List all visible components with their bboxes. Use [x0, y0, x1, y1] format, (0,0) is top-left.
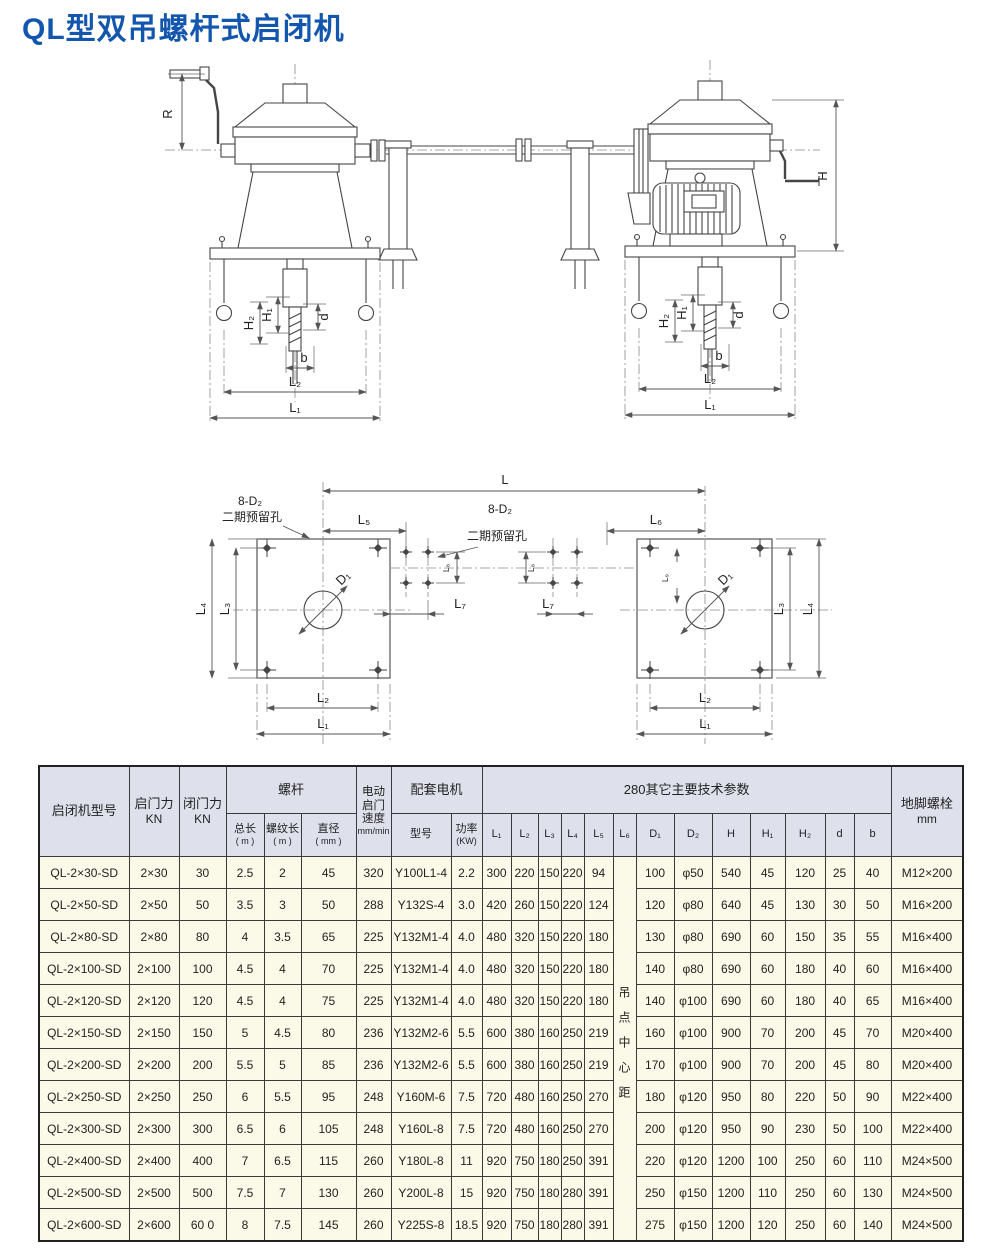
cell-L1: 600 [482, 1017, 511, 1049]
cell-L3: 160 [538, 1081, 561, 1113]
cell-D1: 130 [636, 921, 674, 953]
table-row: QL-2×500-SD 2×500 500 7.5 7 130 260 Y200… [39, 1177, 963, 1209]
cell-L4: 250 [561, 1049, 584, 1081]
cell-speed: 225 [356, 985, 391, 1017]
cell-H: 540 [712, 857, 750, 889]
cell-L1: 300 [482, 857, 511, 889]
cell-H: 1200 [712, 1209, 750, 1242]
cell-L1: 720 [482, 1081, 511, 1113]
spec-table-head: 启闭机型号 启门力 KN 闭门力 KN 螺杆 电动启门速度 mm/min 配套电… [39, 766, 963, 857]
cell-H1: 110 [750, 1177, 785, 1209]
cell-L5: 391 [584, 1145, 613, 1177]
cell-L4: 220 [561, 921, 584, 953]
cell-screw-thread-length: 2 [264, 857, 301, 889]
cell-L1: 600 [482, 1049, 511, 1081]
spec-table-body: QL-2×30-SD 2×30 30 2.5 2 45 320 Y100L1-4… [39, 857, 963, 1242]
cell-H2: 180 [785, 985, 825, 1017]
cell-d: 40 [825, 985, 854, 1017]
cell-H2: 220 [785, 1081, 825, 1113]
cell-motor-model: Y132M1-4 [391, 921, 451, 953]
cell-anchor-bolt: M22×400 [891, 1081, 963, 1113]
cell-closing-force: 500 [179, 1177, 226, 1209]
col-closing-force: 闭门力 KN [179, 766, 226, 857]
cell-screw-diameter: 130 [301, 1177, 356, 1209]
cell-D1: 220 [636, 1145, 674, 1177]
cell-L2: 320 [511, 985, 538, 1017]
cell-screw-diameter: 115 [301, 1145, 356, 1177]
shaft-support-right [561, 141, 599, 289]
cell-D1: 180 [636, 1081, 674, 1113]
svg-text:d: d [731, 311, 746, 318]
table-row: QL-2×150-SD 2×150 150 5 4.5 80 236 Y132M… [39, 1017, 963, 1049]
cell-screw-diameter: 80 [301, 1017, 356, 1049]
cell-D2: φ150 [674, 1177, 712, 1209]
svg-text:L₂: L₂ [699, 690, 711, 705]
col-L5: L₅ [584, 814, 613, 857]
cell-H1: 70 [750, 1049, 785, 1081]
svg-text:L₅: L₅ [358, 512, 370, 527]
cell-screw-diameter: 75 [301, 985, 356, 1017]
svg-text:L₁: L₁ [317, 716, 329, 731]
cell-screw-thread-length: 4 [264, 985, 301, 1017]
col-opening-force: 启门力 KN [129, 766, 179, 857]
cell-H: 690 [712, 985, 750, 1017]
cell-d: 60 [825, 1145, 854, 1177]
spec-table-wrap: 启闭机型号 启门力 KN 闭门力 KN 螺杆 电动启门速度 mm/min 配套电… [38, 765, 962, 1242]
cell-H: 1200 [712, 1177, 750, 1209]
svg-text:L₂: L₂ [317, 690, 329, 705]
col-screw-total: 总长 ( m ) [226, 814, 264, 857]
dims-right-plate: L₆ L₉ L₃ L₄ L₂ L₁ [607, 512, 826, 740]
cell-model: QL-2×400-SD [39, 1145, 129, 1177]
cell-model: QL-2×250-SD [39, 1081, 129, 1113]
cell-d: 50 [825, 1113, 854, 1145]
cell-screw-diameter: 70 [301, 953, 356, 985]
cell-L3: 160 [538, 1049, 561, 1081]
svg-text:H₂: H₂ [241, 316, 256, 330]
mid-hole-groups: L₈ L₇ L₈ L₇ [374, 538, 637, 620]
col-anchor-bolt: 地脚螺栓 mm [891, 766, 963, 857]
cell-L5: 180 [584, 921, 613, 953]
svg-text:L₆: L₆ [650, 512, 662, 527]
cell-L1: 920 [482, 1209, 511, 1242]
cell-motor-power: 4.0 [451, 953, 482, 985]
svg-text:L₂: L₂ [289, 374, 301, 389]
cell-anchor-bolt: M16×400 [891, 953, 963, 985]
cell-screw-total-length: 7.5 [226, 1177, 264, 1209]
cell-screw-thread-length: 5 [264, 1049, 301, 1081]
cell-H2: 200 [785, 1049, 825, 1081]
cell-L3: 160 [538, 1113, 561, 1145]
cell-L1: 920 [482, 1177, 511, 1209]
cell-screw-total-length: 4.5 [226, 985, 264, 1017]
cell-closing-force: 30 [179, 857, 226, 889]
cell-H: 950 [712, 1081, 750, 1113]
cell-opening-force: 2×600 [129, 1209, 179, 1242]
col-motor-power: 功率 (KW) [451, 814, 482, 857]
cell-L1: 420 [482, 889, 511, 921]
label-H: H [815, 171, 830, 180]
cell-anchor-bolt: M16×200 [891, 889, 963, 921]
cell-H1: 70 [750, 1017, 785, 1049]
cell-motor-model: Y160L-8 [391, 1113, 451, 1145]
cell-closing-force: 80 [179, 921, 226, 953]
cell-H2: 120 [785, 857, 825, 889]
cell-screw-diameter: 85 [301, 1049, 356, 1081]
cell-screw-total-length: 4.5 [226, 953, 264, 985]
cell-L4: 280 [561, 1209, 584, 1242]
cell-closing-force: 60 0 [179, 1209, 226, 1242]
col-screw-thread: 螺纹长 ( m ) [264, 814, 301, 857]
cell-screw-diameter: 50 [301, 889, 356, 921]
cell-L4: 250 [561, 1113, 584, 1145]
cell-H: 640 [712, 889, 750, 921]
cell-anchor-bolt: M12×200 [891, 857, 963, 889]
cell-L1: 480 [482, 921, 511, 953]
cell-H2: 130 [785, 889, 825, 921]
svg-text:D₁: D₁ [333, 567, 354, 588]
cell-screw-diameter: 105 [301, 1113, 356, 1145]
cell-opening-force: 2×300 [129, 1113, 179, 1145]
svg-text:H₁: H₁ [259, 308, 274, 322]
cell-H1: 45 [750, 889, 785, 921]
cell-b: 140 [854, 1209, 891, 1242]
table-row: QL-2×200-SD 2×200 200 5.5 5 85 236 Y132M… [39, 1049, 963, 1081]
cell-screw-total-length: 4 [226, 921, 264, 953]
cell-L5: 219 [584, 1017, 613, 1049]
cell-opening-force: 2×30 [129, 857, 179, 889]
cell-D1: 140 [636, 985, 674, 1017]
cell-H: 900 [712, 1049, 750, 1081]
cell-motor-power: 2.2 [451, 857, 482, 889]
table-row: QL-2×120-SD 2×120 120 4.5 4 75 225 Y132M… [39, 985, 963, 1017]
cell-screw-thread-length: 5.5 [264, 1081, 301, 1113]
cell-L3: 150 [538, 921, 561, 953]
cell-d: 25 [825, 857, 854, 889]
cell-D2: φ120 [674, 1113, 712, 1145]
cell-H: 1200 [712, 1145, 750, 1177]
cell-motor-power: 4.0 [451, 921, 482, 953]
col-L3: L₃ [538, 814, 561, 857]
cell-L4: 220 [561, 857, 584, 889]
col-D1: D₁ [636, 814, 674, 857]
cell-L5: 219 [584, 1049, 613, 1081]
cell-d: 45 [825, 1049, 854, 1081]
cell-L5: 94 [584, 857, 613, 889]
cell-anchor-bolt: M24×500 [891, 1209, 963, 1242]
cell-D2: φ100 [674, 1017, 712, 1049]
cell-b: 65 [854, 985, 891, 1017]
col-L1: L₁ [482, 814, 511, 857]
cell-model: QL-2×150-SD [39, 1017, 129, 1049]
cell-L3: 150 [538, 889, 561, 921]
cell-b: 40 [854, 857, 891, 889]
cell-b: 130 [854, 1177, 891, 1209]
cell-closing-force: 300 [179, 1113, 226, 1145]
cell-H1: 100 [750, 1145, 785, 1177]
cell-L3: 150 [538, 953, 561, 985]
cell-L1: 720 [482, 1113, 511, 1145]
cell-L2: 220 [511, 857, 538, 889]
cell-d: 60 [825, 1209, 854, 1242]
cell-speed: 288 [356, 889, 391, 921]
cell-L1: 920 [482, 1145, 511, 1177]
dim-R: R [160, 74, 205, 150]
dim-H: H [772, 100, 844, 251]
cell-motor-power: 7.5 [451, 1113, 482, 1145]
cell-opening-force: 2×100 [129, 953, 179, 985]
cell-motor-power: 15 [451, 1177, 482, 1209]
cell-motor-model: Y132S-4 [391, 889, 451, 921]
cell-opening-force: 2×50 [129, 889, 179, 921]
cell-screw-thread-length: 6.5 [264, 1145, 301, 1177]
col-group-screw: 螺杆 [226, 766, 356, 814]
cell-speed: 260 [356, 1209, 391, 1242]
cell-motor-power: 5.5 [451, 1049, 482, 1081]
cell-D1: 140 [636, 953, 674, 985]
cell-speed: 248 [356, 1081, 391, 1113]
cell-screw-total-length: 2.5 [226, 857, 264, 889]
svg-text:d: d [316, 313, 331, 320]
cell-opening-force: 2×150 [129, 1017, 179, 1049]
svg-text:二期预留孔: 二期预留孔 [222, 510, 282, 524]
cell-closing-force: 400 [179, 1145, 226, 1177]
cell-motor-power: 4.0 [451, 985, 482, 1017]
cell-b: 50 [854, 889, 891, 921]
svg-text:H₂: H₂ [656, 314, 671, 328]
cell-H1: 90 [750, 1113, 785, 1145]
table-row: QL-2×100-SD 2×100 100 4.5 4 70 225 Y132M… [39, 953, 963, 985]
cell-anchor-bolt: M24×500 [891, 1145, 963, 1177]
svg-text:L₁: L₁ [289, 400, 301, 415]
cell-L2: 750 [511, 1145, 538, 1177]
cell-L3: 150 [538, 985, 561, 1017]
svg-text:L: L [501, 472, 508, 487]
cell-L2: 320 [511, 953, 538, 985]
cell-closing-force: 150 [179, 1017, 226, 1049]
table-row: QL-2×600-SD 2×600 60 0 8 7.5 145 260 Y22… [39, 1209, 963, 1242]
table-row: QL-2×30-SD 2×30 30 2.5 2 45 320 Y100L1-4… [39, 857, 963, 889]
cell-L2: 380 [511, 1017, 538, 1049]
cell-d: 45 [825, 1017, 854, 1049]
datasheet-page: { "page": { "title": "QL型双吊螺杆式启闭机" }, "d… [0, 0, 1000, 1250]
cell-d: 30 [825, 889, 854, 921]
cell-speed: 236 [356, 1049, 391, 1081]
cell-closing-force: 200 [179, 1049, 226, 1081]
svg-text:二期预留孔: 二期预留孔 [467, 529, 527, 543]
cell-D2: φ120 [674, 1081, 712, 1113]
cell-motor-power: 5.5 [451, 1017, 482, 1049]
svg-text:L₂: L₂ [704, 371, 716, 386]
cell-D2: φ80 [674, 889, 712, 921]
svg-text:L₉: L₉ [660, 574, 670, 582]
svg-text:H₁: H₁ [674, 306, 689, 320]
cell-L3: 180 [538, 1209, 561, 1242]
cell-b: 80 [854, 1049, 891, 1081]
cell-speed: 225 [356, 921, 391, 953]
svg-text:L₇: L₇ [542, 596, 554, 611]
col-screw-dia: 直径 ( mm ) [301, 814, 356, 857]
cell-L2: 260 [511, 889, 538, 921]
cell-H1: 60 [750, 953, 785, 985]
cell-L2: 480 [511, 1113, 538, 1145]
cell-L5: 124 [584, 889, 613, 921]
cell-L2: 750 [511, 1209, 538, 1242]
cell-H2: 200 [785, 1017, 825, 1049]
cell-opening-force: 2×120 [129, 985, 179, 1017]
note-reserved-holes-mid: 8-D₂ 二期预留孔 [438, 502, 527, 557]
cell-screw-diameter: 65 [301, 921, 356, 953]
cell-D1: 120 [636, 889, 674, 921]
svg-text:L₈: L₈ [526, 563, 536, 572]
cell-anchor-bolt: M20×400 [891, 1017, 963, 1049]
label-R: R [160, 109, 175, 118]
cell-motor-model: Y132M2-6 [391, 1017, 451, 1049]
cell-anchor-bolt: M22×400 [891, 1113, 963, 1145]
cell-closing-force: 250 [179, 1081, 226, 1113]
col-L4: L₄ [561, 814, 584, 857]
cell-D2: φ100 [674, 985, 712, 1017]
cell-model: QL-2×200-SD [39, 1049, 129, 1081]
cell-D2: φ80 [674, 921, 712, 953]
cell-screw-total-length: 8 [226, 1209, 264, 1242]
cell-D2: φ150 [674, 1209, 712, 1242]
col-L6: L₆ [613, 814, 636, 857]
cell-screw-total-length: 5.5 [226, 1049, 264, 1081]
cell-L4: 250 [561, 1081, 584, 1113]
svg-text:L₁: L₁ [699, 716, 711, 731]
cell-model: QL-2×30-SD [39, 857, 129, 889]
cell-screw-diameter: 145 [301, 1209, 356, 1242]
cell-L3: 180 [538, 1177, 561, 1209]
cell-D1: 170 [636, 1049, 674, 1081]
cell-anchor-bolt: M16×400 [891, 921, 963, 953]
col-H: H [712, 814, 750, 857]
cell-H: 950 [712, 1113, 750, 1145]
col-D2: D₂ [674, 814, 712, 857]
cell-speed: 260 [356, 1145, 391, 1177]
table-row: QL-2×50-SD 2×50 50 3.5 3 50 288 Y132S-4 … [39, 889, 963, 921]
cell-motor-model: Y100L1-4 [391, 857, 451, 889]
cell-H: 900 [712, 1017, 750, 1049]
col-d: d [825, 814, 854, 857]
cell-L2: 380 [511, 1049, 538, 1081]
svg-text:L₇: L₇ [454, 596, 466, 611]
svg-text:L₈: L₈ [441, 563, 451, 572]
table-row: QL-2×400-SD 2×400 400 7 6.5 115 260 Y180… [39, 1145, 963, 1177]
svg-text:L₃: L₃ [217, 603, 232, 616]
cell-L5: 180 [584, 985, 613, 1017]
hand-crank-left [170, 67, 218, 144]
cell-L5: 391 [584, 1177, 613, 1209]
cell-H2: 180 [785, 953, 825, 985]
cell-L3: 180 [538, 1145, 561, 1177]
cell-D1: 275 [636, 1209, 674, 1242]
cell-d: 50 [825, 1081, 854, 1113]
cell-H1: 120 [750, 1209, 785, 1242]
cell-motor-power: 18.5 [451, 1209, 482, 1242]
cell-opening-force: 2×400 [129, 1145, 179, 1177]
cell-H2: 230 [785, 1113, 825, 1145]
cell-L1: 480 [482, 953, 511, 985]
cell-b: 110 [854, 1145, 891, 1177]
cell-anchor-bolt: M24×500 [891, 1177, 963, 1209]
table-row: QL-2×80-SD 2×80 80 4 3.5 65 225 Y132M1-4… [39, 921, 963, 953]
cell-L5: 180 [584, 953, 613, 985]
col-group-motor: 配套电机 [391, 766, 482, 814]
table-row: QL-2×250-SD 2×250 250 6 5.5 95 248 Y160M… [39, 1081, 963, 1113]
cell-screw-total-length: 3.5 [226, 889, 264, 921]
cell-model: QL-2×600-SD [39, 1209, 129, 1242]
cell-L4: 250 [561, 1145, 584, 1177]
cell-L2: 480 [511, 1081, 538, 1113]
cell-L4: 280 [561, 1177, 584, 1209]
cell-L5: 391 [584, 1209, 613, 1242]
cell-motor-model: Y132M2-6 [391, 1049, 451, 1081]
cell-motor-model: Y132M1-4 [391, 985, 451, 1017]
cell-L4: 220 [561, 985, 584, 1017]
cell-H2: 250 [785, 1177, 825, 1209]
cell-b: 100 [854, 1113, 891, 1145]
cell-screw-thread-length: 4.5 [264, 1017, 301, 1049]
cell-closing-force: 50 [179, 889, 226, 921]
cell-D2: φ80 [674, 953, 712, 985]
cell-speed: 225 [356, 953, 391, 985]
cell-b: 70 [854, 1017, 891, 1049]
cell-H1: 60 [750, 985, 785, 1017]
svg-text:L₄: L₄ [193, 603, 208, 616]
cell-anchor-bolt: M16×400 [891, 985, 963, 1017]
cell-motor-model: Y180L-8 [391, 1145, 451, 1177]
cell-D1: 250 [636, 1177, 674, 1209]
cell-closing-force: 120 [179, 985, 226, 1017]
svg-text:L₃: L₃ [771, 603, 786, 616]
svg-text:8-D₂: 8-D₂ [238, 494, 262, 508]
svg-text:L₁: L₁ [704, 397, 716, 412]
svg-text:b: b [715, 348, 722, 363]
cell-model: QL-2×100-SD [39, 953, 129, 985]
cell-d: 40 [825, 953, 854, 985]
cell-D2: φ120 [674, 1145, 712, 1177]
cell-H1: 80 [750, 1081, 785, 1113]
cell-speed: 248 [356, 1113, 391, 1145]
cell-b: 60 [854, 953, 891, 985]
svg-text:8-D₂: 8-D₂ [488, 502, 512, 516]
cell-D2: φ50 [674, 857, 712, 889]
svg-text:D₁: D₁ [715, 567, 736, 588]
cell-H1: 60 [750, 921, 785, 953]
cell-L4: 250 [561, 1017, 584, 1049]
cell-screw-thread-length: 7.5 [264, 1209, 301, 1242]
cell-L1: 480 [482, 985, 511, 1017]
cell-H2: 250 [785, 1145, 825, 1177]
hoist-left-elevation [210, 64, 385, 402]
cell-opening-force: 2×250 [129, 1081, 179, 1113]
cell-L4: 220 [561, 953, 584, 985]
spec-table: 启闭机型号 启门力 KN 闭门力 KN 螺杆 电动启门速度 mm/min 配套电… [38, 765, 964, 1242]
col-group-params: 280其它主要技术参数 [482, 766, 891, 814]
cell-motor-model: Y132M1-4 [391, 953, 451, 985]
cell-model: QL-2×50-SD [39, 889, 129, 921]
cell-screw-total-length: 7 [226, 1145, 264, 1177]
cell-screw-thread-length: 7 [264, 1177, 301, 1209]
cell-opening-force: 2×500 [129, 1177, 179, 1209]
cell-L3: 160 [538, 1017, 561, 1049]
cell-D1: 160 [636, 1017, 674, 1049]
cell-model: QL-2×80-SD [39, 921, 129, 953]
hand-crank-right [770, 140, 819, 186]
cell-b: 55 [854, 921, 891, 953]
